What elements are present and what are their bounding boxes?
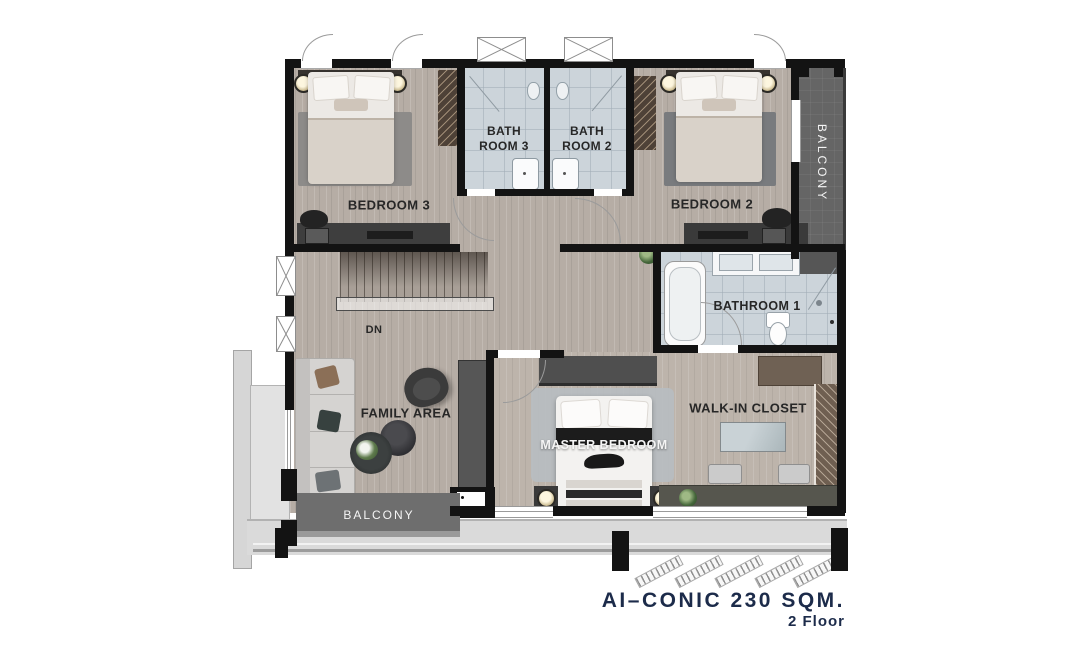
window-icon <box>477 37 526 62</box>
window-gap <box>653 506 807 518</box>
corridor-cabinet <box>458 360 488 494</box>
sliding-door-gap <box>285 410 294 469</box>
master-headboard-wall <box>539 356 657 386</box>
wall-left-upper <box>285 59 294 256</box>
closet-island <box>720 422 786 452</box>
bathroom1-label: BATHROOM 1 <box>713 299 800 313</box>
closet-stool <box>778 464 810 484</box>
walk-in-closet-label: WALK-IN CLOSET <box>689 401 807 416</box>
coffee-table-plant <box>350 432 392 474</box>
window-icon <box>276 316 296 352</box>
window-icon <box>276 256 296 296</box>
wall-bath2-bed2 <box>626 59 634 196</box>
bathtub <box>664 261 706 347</box>
bathroom3-label: BATH ROOM 3 <box>479 124 529 154</box>
wall-corridor-master <box>486 350 494 515</box>
plan-subtitle: 2 Floor <box>555 613 845 630</box>
closet-stool <box>708 464 742 484</box>
window-icon <box>564 37 613 62</box>
wall-left-lower <box>285 350 294 410</box>
balcony-outer-rail <box>843 68 846 258</box>
bedroom2-label: BEDROOM 2 <box>671 197 753 212</box>
stairs-dn-label: DN <box>366 324 383 336</box>
wall-bathroom1-left <box>653 250 661 352</box>
exterior-post <box>831 528 848 571</box>
door-gap <box>498 350 540 358</box>
closet-counter-top <box>758 356 822 386</box>
wall-bedroom2-bottom <box>560 244 845 252</box>
master-bed <box>556 396 652 510</box>
bedroom2-wardrobe <box>633 76 656 150</box>
bedroom3-bed <box>308 72 394 182</box>
balcony-bottom-edge <box>296 531 460 537</box>
balcony-right-label: BALCONY <box>815 124 829 202</box>
wall-left-mid <box>285 294 294 316</box>
sofa <box>295 358 355 504</box>
balcony-bottom-label: BALCONY <box>343 508 414 522</box>
wall-bathroom1-bottom <box>653 345 845 353</box>
door-swing <box>392 34 423 61</box>
balcony-wall-block <box>281 469 297 501</box>
bedroom2-bed <box>676 72 762 180</box>
balcony-window-gap <box>791 100 801 162</box>
shower-drain-dot <box>830 320 834 324</box>
master-bedroom-label: MASTER BEDROOM <box>540 438 667 452</box>
door-gap <box>698 345 738 353</box>
stairs-railing <box>336 297 494 311</box>
bedroom3-chair <box>300 210 328 228</box>
door-swing <box>302 34 333 61</box>
bathroom2-label: BATH ROOM 2 <box>562 124 612 154</box>
window-gap <box>495 506 553 518</box>
stairs <box>340 252 488 302</box>
bathroom1-toilet-bowl <box>769 322 787 346</box>
exterior-post <box>612 531 629 571</box>
family-area-label: FAMILY AREA <box>361 406 452 421</box>
exterior-bottom-highlight <box>253 543 845 545</box>
plan-title: AI–CONIC 230 SQM. <box>555 589 845 613</box>
wall-right-lower <box>837 250 846 513</box>
door-swing <box>754 34 786 61</box>
bathroom3-toilet <box>527 82 540 100</box>
door-gap <box>467 189 495 196</box>
wall-bed3-bath3 <box>457 59 465 196</box>
exterior-bottom-edge-line <box>253 549 845 552</box>
bathroom1-vanity <box>712 248 800 276</box>
bedroom3-label: BEDROOM 3 <box>348 198 430 213</box>
balcony-wall-block <box>281 520 297 546</box>
bathroom2-toilet <box>556 82 569 100</box>
floor-plan: BEDROOM 3 BATH ROOM 3 BATH ROOM 2 BEDROO… <box>0 0 1080 648</box>
shower-head-icon <box>816 300 822 306</box>
bathroom2-sink <box>552 158 579 190</box>
bathroom3-sink <box>512 158 539 190</box>
bedroom2-chair <box>762 208 792 228</box>
wall-bedroom3-bottom <box>285 244 460 252</box>
plant <box>679 489 697 507</box>
door-gap <box>594 189 622 196</box>
wall-bath3-bath2 <box>544 59 550 196</box>
